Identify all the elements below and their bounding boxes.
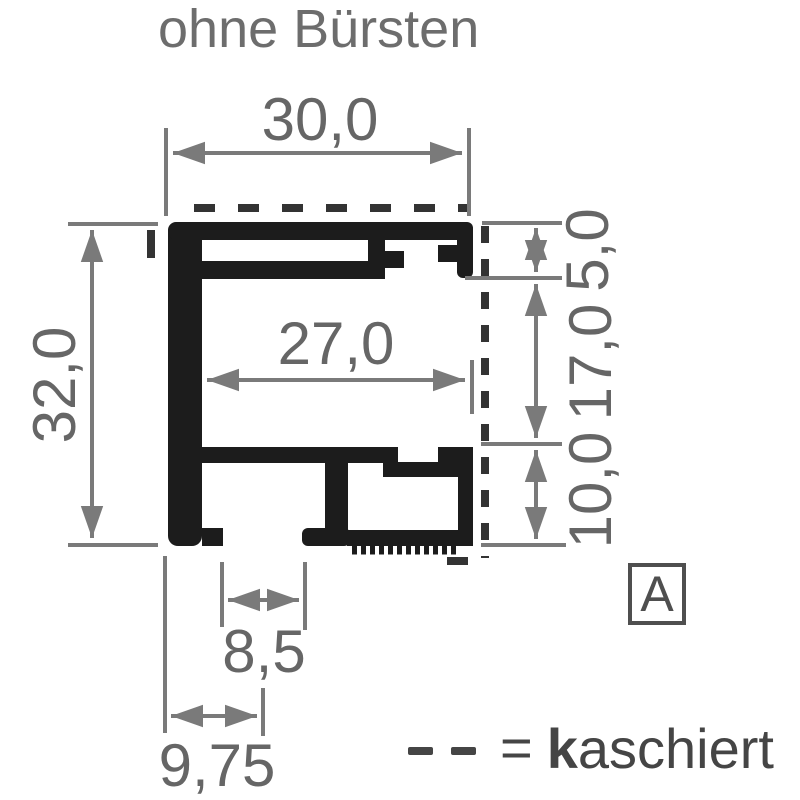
- dim-label-channel-height: 17,0: [561, 304, 621, 421]
- legend-term-bold: k: [547, 717, 578, 780]
- legend-kaschiert: = kaschiert: [408, 722, 774, 780]
- dim-label-foot-offset: 9,75: [159, 736, 276, 796]
- dim-label-bottom-depth: 10,0: [561, 432, 621, 549]
- dim-label-inner-width: 27,0: [278, 314, 395, 374]
- dim-label-top-depth: 5,0: [558, 208, 618, 291]
- section-marker-box: A: [628, 563, 686, 625]
- legend-dash-icon: [408, 747, 433, 755]
- section-marker-label: A: [640, 565, 673, 623]
- profile-top-right-lip: [438, 245, 458, 262]
- profile-top-bar: [168, 222, 473, 240]
- dimension-lines: [68, 128, 566, 736]
- dim-label-outer-height: 32,0: [25, 327, 85, 444]
- profile-top-right-wall: [457, 222, 473, 278]
- profile-drop-connector: [325, 462, 348, 532]
- technical-drawing-page: ohne Bürsten 30,0 32,0 27,0 5,0 17,0 10,…: [0, 0, 800, 800]
- profile-slot-flange: [193, 261, 385, 279]
- profile-mid-tab: [385, 251, 404, 268]
- dim-label-slot-width: 8,5: [222, 622, 305, 682]
- legend-equals-sign: =: [500, 720, 533, 776]
- dim-label-outer-width: 30,0: [262, 90, 379, 150]
- profile-left-foot: [202, 528, 223, 546]
- profile-foot-main: [347, 530, 473, 546]
- legend-term: kaschiert: [547, 721, 774, 777]
- profile-drawing-canvas: [0, 0, 800, 800]
- legend-term-rest: aschiert: [578, 717, 774, 780]
- profile-cross-section: [168, 222, 473, 550]
- profile-arm-uptab: [438, 447, 473, 463]
- drawing-title: ohne Bürsten: [158, 2, 479, 56]
- legend-dash-icon: [451, 747, 476, 755]
- profile-arm-flange: [193, 447, 398, 463]
